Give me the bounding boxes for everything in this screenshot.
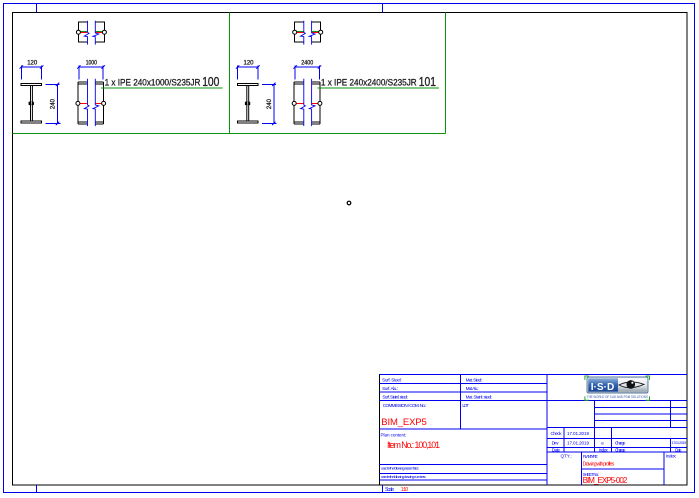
svg-text:Mat. Stainl. steel:: Mat. Stainl. steel:: [466, 394, 493, 399]
svg-text:100: 100: [202, 75, 219, 89]
svg-text:Drw: Drw: [552, 440, 559, 445]
svg-text:BIM_EXP5: BIM_EXP5: [381, 417, 427, 428]
svg-text:Check: Check: [551, 431, 563, 436]
svg-text:Surf. Steel:: Surf. Steel:: [382, 377, 402, 382]
svg-text:120: 120: [27, 61, 38, 67]
svg-text:Mat. Alu.:: Mat. Alu.:: [466, 386, 479, 391]
svg-text:used in the following assembli: used in the following assemblies:: [381, 466, 419, 471]
svg-text:17.01.2019: 17.01.2019: [567, 431, 589, 436]
svg-text:used in the following drawing: used in the following drawing numbers:: [381, 474, 426, 479]
svg-text:e: e: [601, 440, 604, 445]
svg-text:Drawing with profiles: Drawing with profiles: [583, 462, 615, 468]
svg-text:COMMISSION / COM. No.:: COMMISSION / COM. No.:: [383, 403, 427, 408]
svg-text:Index:: Index:: [666, 454, 676, 459]
svg-text:I·S·D: I·S·D: [591, 382, 615, 393]
svg-text:Surf. Stainl. steel:: Surf. Stainl. steel:: [382, 394, 408, 399]
svg-text:Index: Index: [599, 447, 609, 452]
svg-text:Change: Change: [615, 440, 626, 445]
svg-text:1000: 1000: [86, 61, 98, 67]
svg-text:101: 101: [419, 75, 436, 89]
svg-text:QTY.:: QTY.:: [561, 454, 572, 459]
svg-text:1 x IPE 240x1000/S235JR: 1 x IPE 240x1000/S235JR: [105, 77, 201, 87]
svg-text:Item No.: 100,101: Item No.: 100,101: [387, 440, 440, 450]
svg-text:THE WORLD OF CAD AND PDM SOLUT: THE WORLD OF CAD AND PDM SOLUTIONS: [587, 395, 648, 399]
svg-text:Plan content:: Plan content:: [381, 433, 407, 438]
svg-text:Surf. Alu.:: Surf. Alu.:: [382, 386, 398, 391]
svg-text:17.01.2019: 17.01.2019: [567, 440, 589, 445]
svg-text:PLAN TYPE:: PLAN TYPE:: [583, 454, 598, 459]
svg-text:1:10: 1:10: [401, 487, 409, 493]
svg-text:BIM_EXP5-002: BIM_EXP5-002: [583, 476, 628, 485]
svg-text:Mat. Steel:: Mat. Steel:: [466, 377, 483, 382]
svg-text:240: 240: [51, 98, 57, 109]
svg-text:1 x IPE 240x2400/S235JR: 1 x IPE 240x2400/S235JR: [321, 77, 417, 87]
svg-text:Scale:: Scale:: [385, 487, 394, 493]
svg-text:Date: Date: [552, 447, 561, 452]
svg-text:Date: Date: [675, 447, 682, 452]
svg-text:LOT: LOT: [462, 403, 469, 408]
svg-text:Change: Change: [615, 447, 626, 452]
svg-text:2400: 2400: [301, 61, 314, 67]
svg-text:17.01.2019: 17.01.2019: [672, 441, 687, 445]
